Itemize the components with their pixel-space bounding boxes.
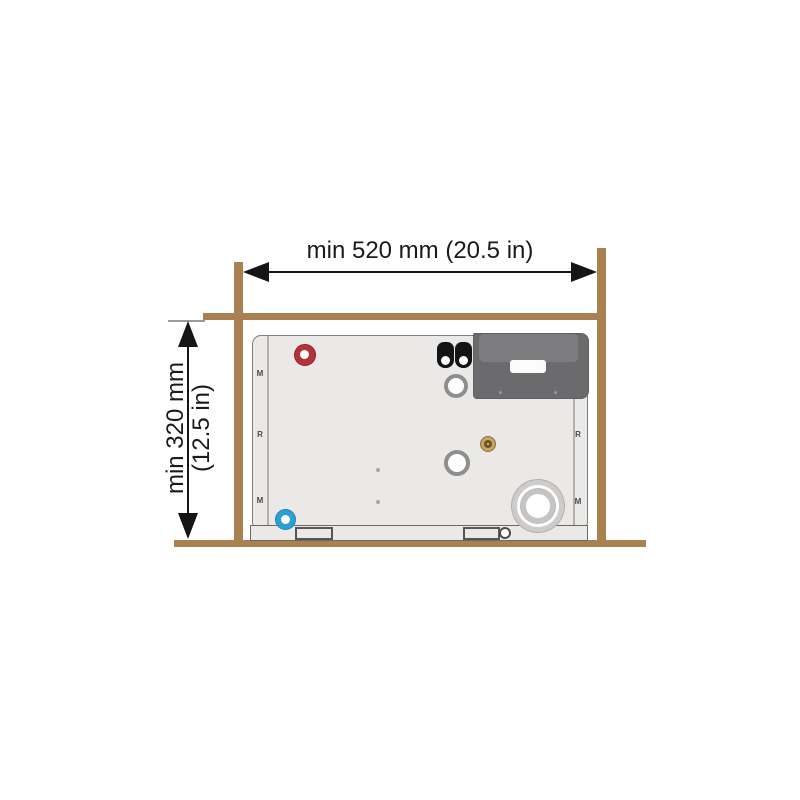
keyhole-opening-icon: [441, 356, 450, 365]
hot-water-port-opening: [300, 350, 309, 359]
pipe-port-upper: [444, 374, 468, 398]
brass-fitting-dot: [487, 443, 489, 445]
edge-marking: R: [253, 430, 267, 439]
arrowhead-left-icon: [243, 262, 269, 282]
pipe-port-lower: [444, 450, 470, 476]
left-edge-strip-line: [267, 336, 269, 525]
arrowhead-up-icon: [178, 321, 198, 347]
edge-marking: M: [571, 497, 585, 506]
mounting-bracket: [295, 527, 333, 540]
panel-rivet-icon: [376, 500, 380, 504]
edge-marking: M: [253, 496, 267, 505]
screw-dot-icon: [554, 391, 557, 394]
right-stud: [597, 248, 606, 541]
control-box-slot: [510, 360, 546, 373]
installation-clearance-diagram: min 520 mm (20.5 in) min 320 mm (12.5 in…: [0, 0, 800, 800]
drain-opening: [499, 527, 511, 539]
edge-marking: R: [571, 430, 585, 439]
arrowhead-right-icon: [571, 262, 597, 282]
height-dimension-line: [187, 340, 189, 520]
cold-water-port-opening: [281, 515, 290, 524]
right-edge-strip-line: [573, 399, 575, 525]
edge-marking: M: [253, 369, 267, 378]
mounting-bracket: [463, 527, 500, 540]
flue-exhaust-vent-inner: [521, 489, 555, 523]
arrowhead-down-icon: [178, 513, 198, 539]
width-dimension-label: min 520 mm (20.5 in): [270, 236, 570, 266]
control-box-cover: [479, 334, 578, 362]
height-dimension-line1: min 320 mm: [163, 362, 189, 494]
panel-rivet-icon: [376, 468, 380, 472]
screw-dot-icon: [499, 391, 502, 394]
width-dimension-line: [255, 271, 585, 273]
height-dimension-line2: (12.5 in): [189, 384, 215, 472]
keyhole-opening-icon: [459, 356, 468, 365]
